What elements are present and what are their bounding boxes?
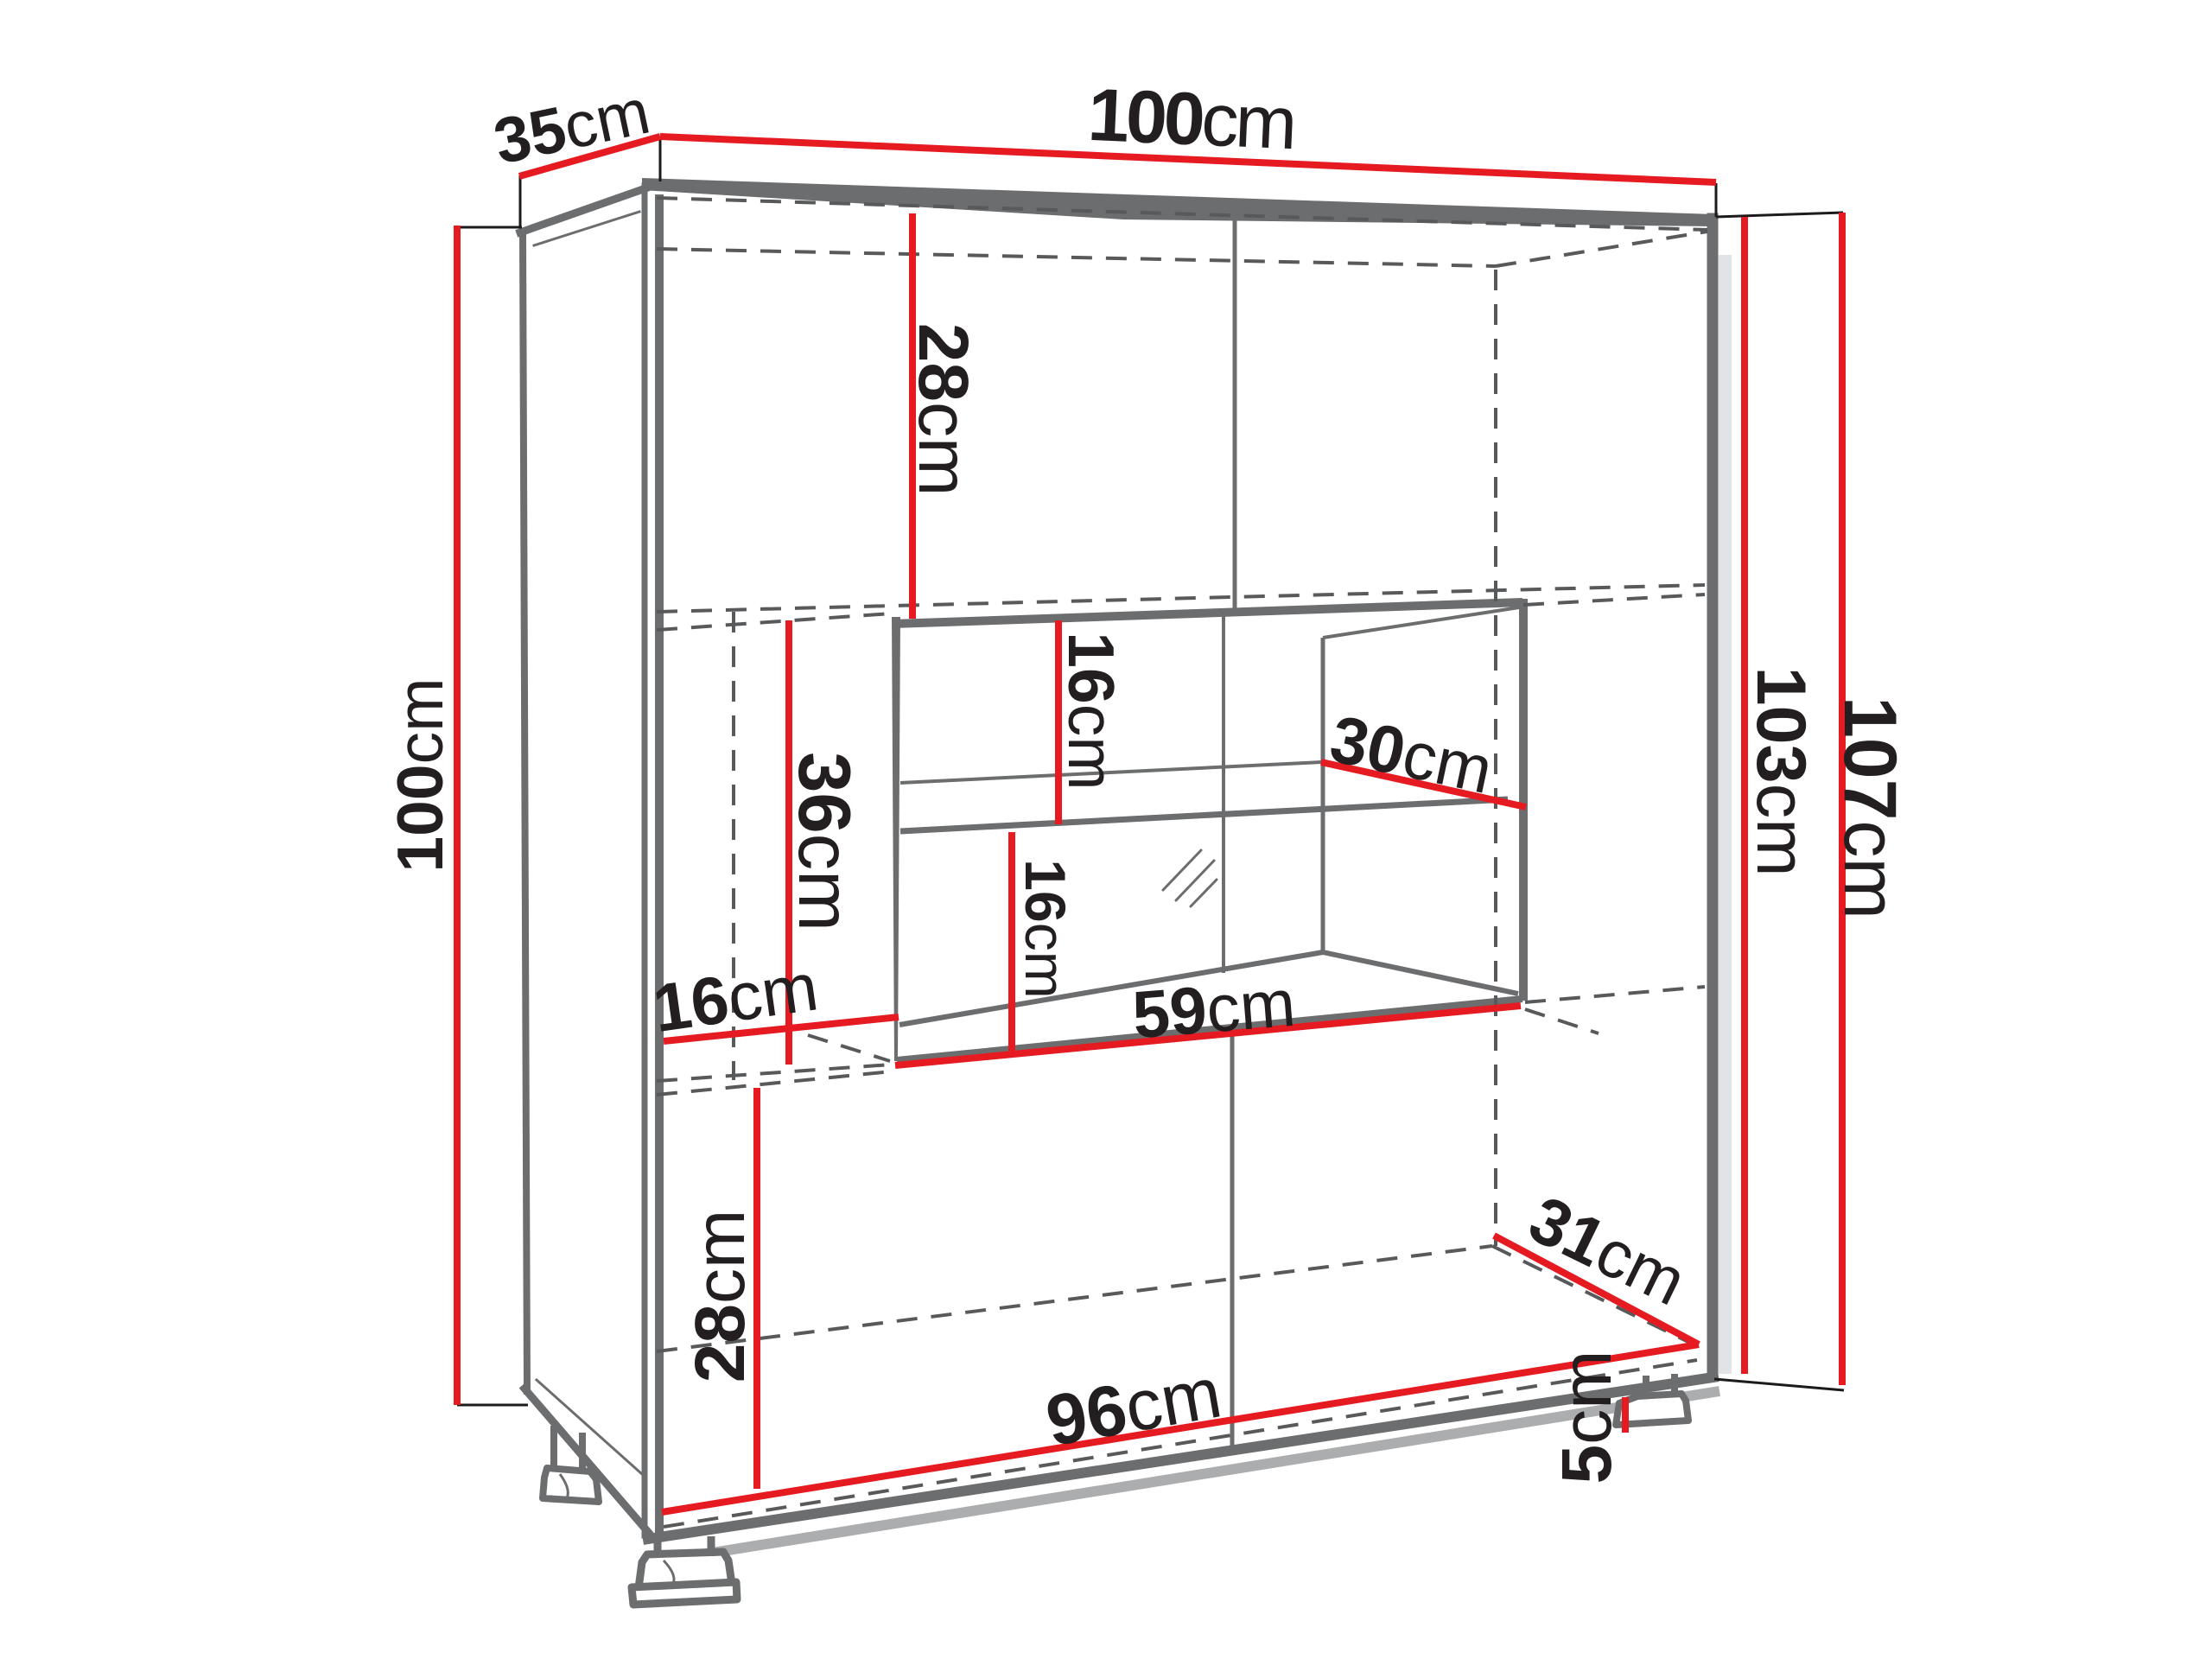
svg-text:28cm: 28cm (904, 323, 982, 497)
svg-text:100cm: 100cm (384, 677, 456, 872)
svg-text:59cm: 59cm (1130, 966, 1298, 1053)
svg-text:28cm: 28cm (681, 1210, 760, 1383)
svg-text:5cm: 5cm (1548, 1351, 1626, 1484)
svg-text:16cm: 16cm (1014, 859, 1077, 998)
svg-text:100cm: 100cm (1086, 73, 1295, 165)
svg-text:16cm: 16cm (1055, 632, 1128, 790)
svg-text:107cm: 107cm (1828, 696, 1911, 919)
svg-text:103cm: 103cm (1742, 666, 1820, 876)
svg-text:36cm: 36cm (783, 752, 865, 931)
